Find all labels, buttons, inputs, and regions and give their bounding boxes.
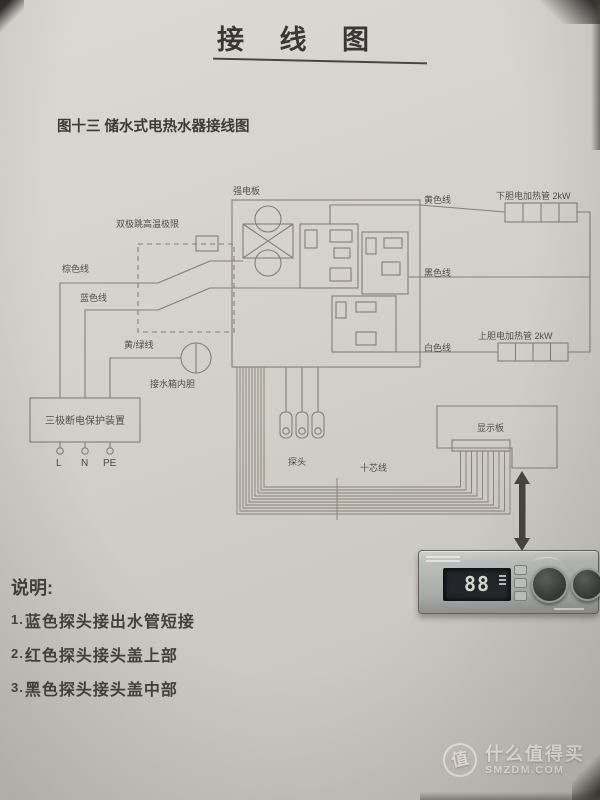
terminal-l: L (56, 458, 62, 469)
note-item: 3.黑色探头接头盖中部 (11, 676, 195, 700)
note-item: 1.蓝色探头接出水管短接 (11, 608, 195, 632)
display-board-shape (437, 406, 557, 468)
label-lower-heater: 下胆电加热管 2kW (496, 189, 571, 202)
blue-wire (85, 310, 158, 398)
photo-edge-shadow-right (591, 0, 600, 150)
thermal-cutout-switch (138, 236, 300, 332)
right-return-wire (568, 212, 590, 352)
smzdm-watermark: 值 什么值得买 SMZDM.COM (443, 743, 585, 777)
panel-bottom-label (554, 608, 584, 610)
watermark-name: 什么值得买 (485, 745, 585, 764)
note-item: 2.红色探头接头盖上部 (11, 642, 195, 666)
ten-core-bundle (237, 367, 510, 520)
label-probes: 探头 (288, 455, 306, 468)
label-blue-wire: 蓝色线 (80, 291, 107, 304)
note-text: 蓝色探头接出水管短接 (25, 614, 195, 631)
label-power-board: 强电板 (233, 184, 260, 197)
yellow-wire-run (330, 205, 505, 224)
heater-element-upper (498, 343, 568, 361)
transformer-symbol (243, 206, 293, 276)
heater-element-lower (505, 203, 577, 222)
notes-section: 说明: 1.蓝色探头接出水管短接 2.红色探头接头盖上部 3.黑色探头接头盖中部 (11, 574, 195, 710)
double-arrow (514, 471, 530, 551)
label-black-wire: 黑色线 (424, 266, 451, 279)
label-bipolar-limit: 双极跳高温极限 (116, 217, 179, 230)
label-yellow-wire: 黄色线 (424, 193, 451, 206)
label-protector: 三极断电保护装置 (32, 412, 138, 427)
temperature-value: 88 (464, 572, 490, 596)
label-yellow-green-wire: 黄/绿线 (124, 338, 154, 351)
panel-fine-print (426, 556, 460, 564)
note-number: 1. (11, 612, 24, 627)
watermark-site: SMZDM.COM (485, 764, 585, 776)
label-white-wire: 白色线 (424, 341, 451, 354)
smzdm-logo-icon: 值 (440, 740, 480, 780)
photo-corner-shadow-top-left (0, 0, 24, 32)
relay-module-2 (362, 232, 408, 294)
note-text: 红色探头接头盖上部 (25, 648, 178, 665)
temperature-display: 88 (443, 568, 511, 601)
lcd-segment-bars (499, 575, 506, 587)
label-brown-wire: 棕色线 (62, 262, 89, 275)
relay-module-1 (300, 224, 358, 288)
terminal-pe: PE (103, 458, 116, 469)
manual-page-photo: 接 线 图 图十三 储水式电热水器接线图 (0, 0, 600, 800)
tank-liner-symbol (181, 343, 211, 373)
relay-module-3 (332, 296, 396, 352)
label-display-board: 显示板 (477, 421, 504, 434)
note-number: 3. (11, 680, 24, 695)
control-knob-left (531, 566, 568, 603)
label-tank-liner: 接水箱内胆 (150, 377, 195, 390)
power-board-outline (232, 200, 420, 367)
terminal-n: N (81, 458, 88, 469)
label-ten-core-wire: 十芯线 (360, 461, 387, 474)
control-panel-photo: 88 (418, 550, 599, 614)
note-number: 2. (11, 646, 24, 661)
note-text: 黑色探头接头盖中部 (25, 682, 178, 699)
probe-icons (280, 367, 324, 438)
photo-corner-shadow-top-right (520, 0, 600, 24)
label-upper-heater: 上胆电加热管 2kW (478, 329, 553, 342)
panel-button-column (514, 565, 527, 604)
photo-edge-shadow-bottom (420, 792, 600, 800)
control-knob-right (571, 568, 600, 601)
notes-heading: 说明: (11, 574, 195, 600)
